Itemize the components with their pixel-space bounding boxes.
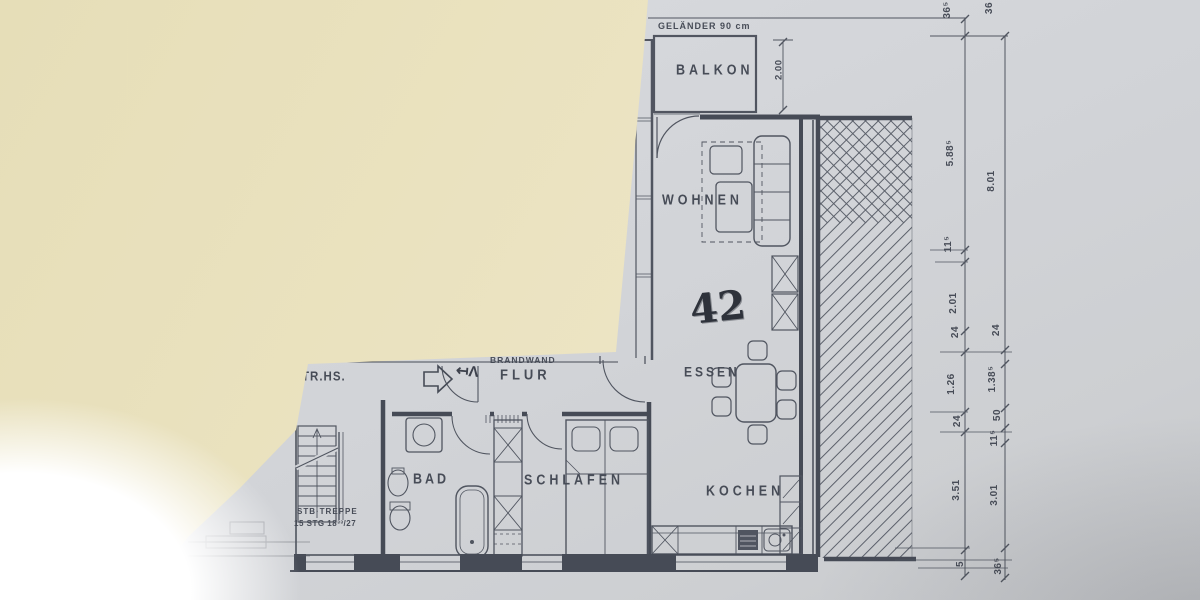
bath-door-arc: [452, 416, 490, 454]
west-window-band: [636, 40, 654, 360]
dim-inner-6: 24: [953, 399, 963, 443]
sofa: [754, 136, 790, 246]
room-label-kochen: KOCHEN: [706, 484, 784, 498]
sink: [764, 529, 790, 551]
room-label-wohnen: WOHNEN: [662, 193, 743, 207]
dim-inner-4: 24: [951, 310, 961, 354]
washed-wall-fragment: [188, 522, 310, 556]
dim-inner-8: 5: [956, 542, 966, 586]
chair: [777, 371, 796, 390]
chair: [712, 397, 731, 416]
bedroom-door-arc: [527, 414, 562, 449]
floorplan-photo: GELÄNDER 90 cm BALKON WOHNEN ESSEN KOCHE…: [0, 0, 1200, 600]
dim-outer-5: 11⁵: [990, 416, 1000, 460]
room-label-flur: FLUR: [500, 367, 551, 382]
kitchen-door-arc: [603, 360, 645, 402]
armchair: [710, 146, 742, 174]
dim-inner-7: 3.51: [952, 468, 962, 512]
dim-outer-6: 3.01: [990, 473, 1000, 517]
chimney-shaft: [486, 415, 522, 556]
dining-table: [736, 364, 776, 422]
direction-arrow-icon: [424, 366, 452, 392]
room-label-treppenhaus: TR.HS.: [302, 371, 346, 384]
dim-outer-7: 36⁵: [994, 544, 1004, 588]
bathtub: [456, 486, 488, 558]
floorplan-drawing: [0, 0, 1200, 600]
dim-inner-1: 5.88⁵: [946, 131, 956, 175]
gelaender-label: GELÄNDER 90 cm: [658, 22, 751, 31]
dim-outer-0: 36: [985, 0, 995, 30]
room-label-bad: BAD: [413, 472, 449, 486]
boiler: [406, 418, 442, 452]
dining-set: [712, 341, 796, 444]
dim-outer-2: 24: [992, 308, 1002, 352]
room-label-balkon: BALKON: [676, 63, 753, 77]
dim-inner-2: 11⁵: [944, 222, 954, 266]
pillow: [610, 427, 638, 451]
apartment-number: 42: [688, 285, 748, 331]
wall-shaft: [772, 256, 798, 330]
handwritten-note: ↤Λ: [455, 363, 479, 380]
hatched-neighbor-building: [818, 118, 916, 559]
dim-outer-1: 8.01: [987, 159, 997, 203]
pillow: [572, 427, 600, 451]
stair-note-line1: STB·TREPPE: [297, 508, 358, 516]
south-wall-windows: [290, 554, 818, 572]
room-label-schlafen: SCHLAFEN: [524, 473, 624, 487]
dimension-ticks: [961, 15, 1009, 582]
room-label-essen: ESSEN: [684, 365, 740, 379]
chair: [748, 425, 767, 444]
chair: [748, 341, 767, 360]
chair: [777, 400, 796, 419]
brandwand-label: BRANDWAND: [490, 356, 556, 365]
stove: [738, 530, 758, 550]
stair-note-line2: 15 STG 18³³/27: [294, 520, 356, 528]
balcony-depth-label: 2.00: [774, 48, 784, 92]
dim-inner-0: 36⁵: [943, 0, 953, 32]
bathroom-fixtures: [388, 418, 488, 558]
balcony-door-arc: [657, 116, 699, 158]
